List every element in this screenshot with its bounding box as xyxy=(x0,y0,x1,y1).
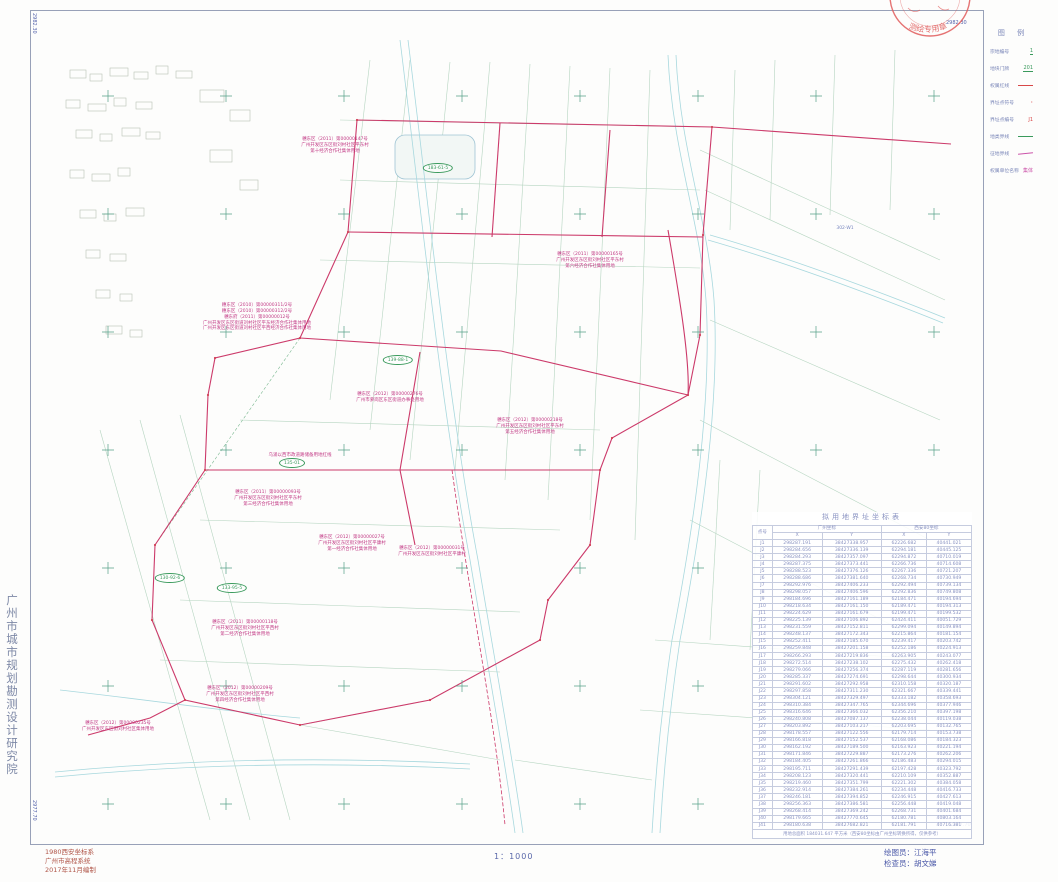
legend-title: 图 例 xyxy=(984,28,1038,38)
table-row: J17298266.29338427219.83662263.90540243.… xyxy=(753,653,972,660)
landclass-lines xyxy=(155,338,540,725)
table-row: J34298208.12338427320.44162210.10940352.… xyxy=(753,773,972,780)
legend-sample-green-line xyxy=(1018,136,1033,137)
table-row: J40298179.66538427770.64562180.78140803.… xyxy=(753,815,972,822)
legend-panel: 图 例 宗地编号1地块门牌201权属红线界址点符号·界址点编号J1地类界线征地界… xyxy=(983,10,1038,845)
scale-label: 1：1000 xyxy=(494,851,533,862)
table-row: J25298316.64638427366.03262356.21040397.… xyxy=(753,709,972,716)
table-row: J14298248.13738427172.34362215.86440181.… xyxy=(753,631,972,638)
legend-sample-magenta-text: 集体 xyxy=(1023,167,1033,174)
drafter-checker-block: 绘图员：江海平 检查员：胡文娣 xyxy=(884,847,937,869)
checker-name: 检查员：胡文娣 xyxy=(884,858,937,869)
legend-item: 地类界线 xyxy=(984,133,1038,140)
legend-items: 宗地编号1地块门牌201权属红线界址点符号·界址点编号J1地类界线征地界线权属单… xyxy=(984,48,1038,174)
map-sheet: 广州市城市规划勘测设计研究院 图 例 宗地编号1地块门牌201权属红线界址点符号… xyxy=(0,0,1058,882)
table-row: J36298232.91438427384.26162234.44840416.… xyxy=(753,787,972,794)
table-row: J31298171.84638427229.88762173.27640262.… xyxy=(753,752,972,759)
drafter-name: 绘图员：江海平 xyxy=(884,847,937,858)
note-line: 2017年11月编制 xyxy=(45,866,96,875)
table-row: J6298288.68638427381.64062268.73440730.9… xyxy=(753,575,972,582)
legend-sample-red-text: J1 xyxy=(1028,117,1033,123)
table-row: J19298279.06638427256.37462287.11940281.… xyxy=(753,667,972,674)
note-line: 1980西安坐标系 xyxy=(45,848,96,857)
legend-sample-green-text: 1 xyxy=(1030,48,1033,55)
table-row: J39298268.41438427369.24262268.73140401.… xyxy=(753,808,972,815)
table-row: J11298224.62938427161.67962199.47140199.… xyxy=(753,610,972,617)
legend-item: 宗地编号1 xyxy=(984,48,1038,55)
legend-sample-green-text: 201 xyxy=(1023,65,1033,72)
building-footprints xyxy=(66,66,258,337)
table-row: J4298287.37538427373.44162266.73640714.6… xyxy=(753,561,972,568)
legend-item: 地块门牌201 xyxy=(984,65,1038,72)
red-dashed-line xyxy=(452,470,505,825)
table-row: J26298240.80838427087.13762238.04440119.… xyxy=(753,716,972,723)
coord-table-body: J1298287.19138427338.95762226.68240441.0… xyxy=(753,540,972,830)
legend-item: 界址点符号· xyxy=(984,99,1038,106)
grid-coord-top-right: 2982.30 xyxy=(946,20,967,26)
table-row: J3298284.29338427357.09762294.87240710.0… xyxy=(753,554,972,561)
table-row: J2298284.65638427336.13962294.18140445.1… xyxy=(753,547,972,554)
table-row: J29298166.81838427152.53762168.08640184.… xyxy=(753,737,972,744)
table-row: J41298180.63838427682.82162181.79140716.… xyxy=(753,822,972,829)
table-row: J18298272.51438427238.10262275.43240262.… xyxy=(753,660,972,667)
table-row: J27298203.89238427103.21762203.69540132.… xyxy=(753,723,972,730)
grid-coord-bottom-left: 2977.70 xyxy=(31,800,37,821)
legend-sample-magenta-line xyxy=(1018,152,1033,155)
coordinate-table-footer: 用地总面积 184031.647 平方米（西安80坐标由广州坐标转换所得，仅供参… xyxy=(752,830,972,839)
table-row: J32298184.40538427261.86662186.48340294.… xyxy=(753,759,972,766)
table-row: J23298304.12138427329.49762333.18240358.… xyxy=(753,695,972,702)
table-row: J30298162.19238427189.50062163.92340221.… xyxy=(753,744,972,751)
table-row: J5298288.52338427376.12662267.33640721.2… xyxy=(753,568,972,575)
grid-coord-top-left: 2982.30 xyxy=(31,13,37,34)
table-row: J15298252.41138427185.67062239.41740203.… xyxy=(753,639,972,646)
table-row: J1298287.19138427338.95762226.68240441.0… xyxy=(753,540,972,547)
table-row: J24298310.38438427347.76562344.69640377.… xyxy=(753,702,972,709)
table-row: J21298291.60238427292.95862310.15840320.… xyxy=(753,681,972,688)
legend-item: 权属单位名称集体 xyxy=(984,167,1038,174)
institute-name: 广州市城市规划勘测设计研究院 xyxy=(4,594,20,776)
legend-item: 征地界线 xyxy=(984,150,1038,157)
legend-item: 界址点编号J1 xyxy=(984,116,1038,123)
table-row: J9298184.69638427161.18962184.47140194.6… xyxy=(753,596,972,603)
legend-sample-red-dot: · xyxy=(1030,101,1033,105)
table-row: J8298298.05738427406.59662292.83640749.8… xyxy=(753,589,972,596)
pond xyxy=(395,135,475,179)
coordinate-system-notes: 1980西安坐标系广州市高程系统2017年11月编制 xyxy=(45,848,96,875)
boundary-points xyxy=(151,119,713,726)
table-row: J38298256.36338427386.58162256.44840419.… xyxy=(753,801,972,808)
table-row: J22298297.85838427311.23062321.66740339.… xyxy=(753,688,972,695)
table-row: J28298178.55738427122.55662179.71440153.… xyxy=(753,730,972,737)
table-row: J16298259.84838427201.15862252.18640224.… xyxy=(753,646,972,653)
table-row: J35298219.46038427351.79962221.30240384.… xyxy=(753,780,972,787)
coordinate-table: 拟用地界址坐标表 点号 广州坐标 西安80坐标 XY XY J1298287.1… xyxy=(752,512,972,839)
table-row: J12298225.13938427106.89262424.41140051.… xyxy=(753,617,972,624)
table-row: J13298231.55938427152.81162299.09440149.… xyxy=(753,624,972,631)
legend-sample-red-line xyxy=(1018,85,1033,86)
table-row: J33298195.71138427291.43962197.42840323.… xyxy=(753,766,972,773)
table-row: J20298285.33738427274.69162298.64440300.… xyxy=(753,674,972,681)
coordinate-table-header: 点号 广州坐标 西安80坐标 XY XY xyxy=(753,526,972,540)
table-row: J10298218.63438427161.15062189.47140194.… xyxy=(753,603,972,610)
coordinate-table-title: 拟用地界址坐标表 xyxy=(752,512,972,522)
note-line: 广州市高程系统 xyxy=(45,857,96,866)
table-row: J7298292.97638427406.23362292.49440739.1… xyxy=(753,582,972,589)
table-row: J37298246.18138427394.85262246.91540427.… xyxy=(753,794,972,801)
legend-item: 权属红线 xyxy=(984,82,1038,89)
